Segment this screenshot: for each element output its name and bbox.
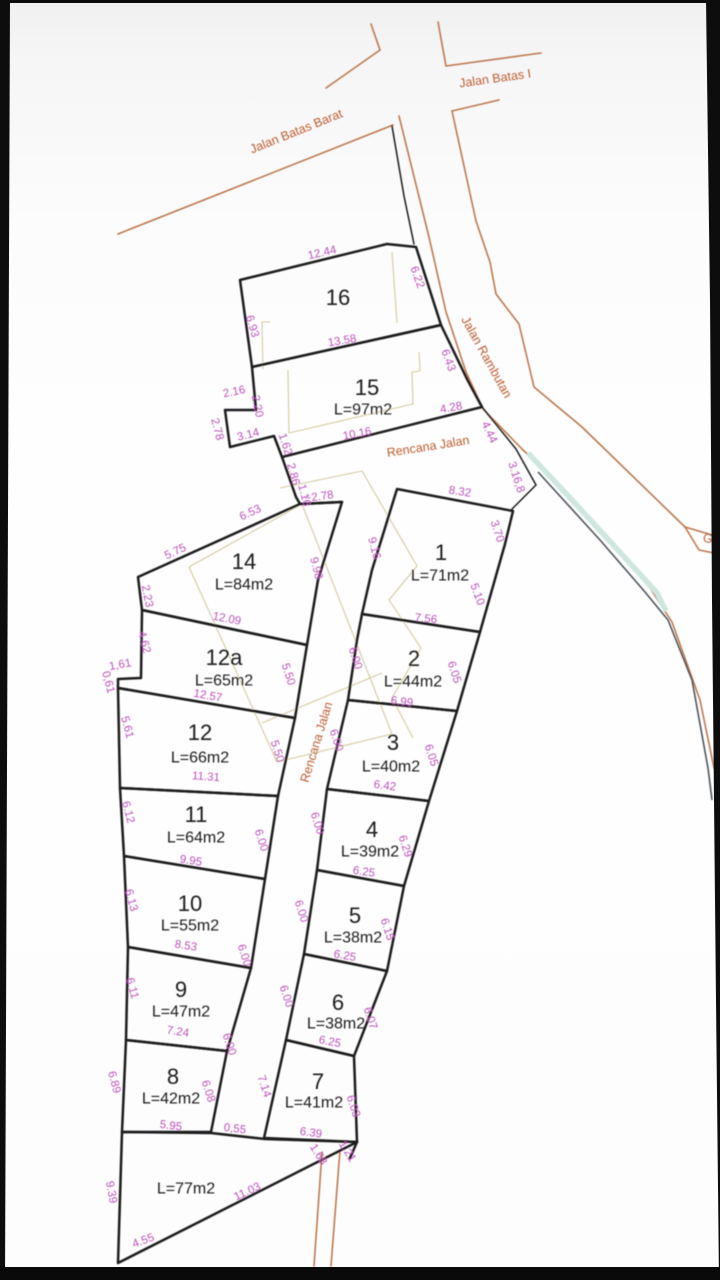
svg-text:12a: 12a	[206, 645, 243, 670]
svg-text:L=39m2: L=39m2	[341, 844, 399, 861]
svg-text:1: 1	[435, 540, 447, 565]
svg-text:L=65m2: L=65m2	[195, 673, 253, 690]
svg-text:L=47m2: L=47m2	[152, 1004, 210, 1021]
svg-text:L=66m2: L=66m2	[171, 750, 229, 767]
svg-text:14: 14	[232, 549, 256, 574]
svg-text:7.56: 7.56	[414, 612, 438, 626]
svg-text:8: 8	[167, 1064, 179, 1089]
svg-text:9: 9	[175, 977, 187, 1002]
svg-text:L=41m2: L=41m2	[285, 1095, 343, 1112]
svg-text:15: 15	[355, 375, 379, 400]
svg-text:L=77m2: L=77m2	[157, 1181, 215, 1198]
svg-text:L=55m2: L=55m2	[161, 918, 219, 935]
svg-text:3: 3	[387, 730, 399, 755]
svg-text:L=44m2: L=44m2	[384, 674, 442, 691]
svg-text:L=42m2: L=42m2	[142, 1091, 200, 1108]
svg-text:4: 4	[366, 817, 378, 842]
svg-text:L=84m2: L=84m2	[215, 577, 273, 594]
svg-text:10: 10	[178, 891, 202, 916]
svg-text:L=97m2: L=97m2	[334, 402, 392, 419]
svg-text:L=71m2: L=71m2	[411, 568, 469, 585]
svg-text:2: 2	[408, 646, 420, 671]
svg-text:11: 11	[185, 802, 208, 827]
svg-text:16: 16	[326, 285, 350, 310]
svg-text:5: 5	[349, 903, 361, 928]
svg-text:L=40m2: L=40m2	[362, 759, 420, 776]
svg-text:12: 12	[188, 720, 212, 745]
svg-text:11.31: 11.31	[192, 770, 221, 784]
svg-text:L=38m2: L=38m2	[307, 1016, 365, 1033]
svg-text:7: 7	[312, 1069, 324, 1094]
svg-text:6: 6	[332, 990, 344, 1015]
svg-text:L=64m2: L=64m2	[167, 830, 225, 847]
svg-text:L=38m2: L=38m2	[324, 930, 382, 947]
